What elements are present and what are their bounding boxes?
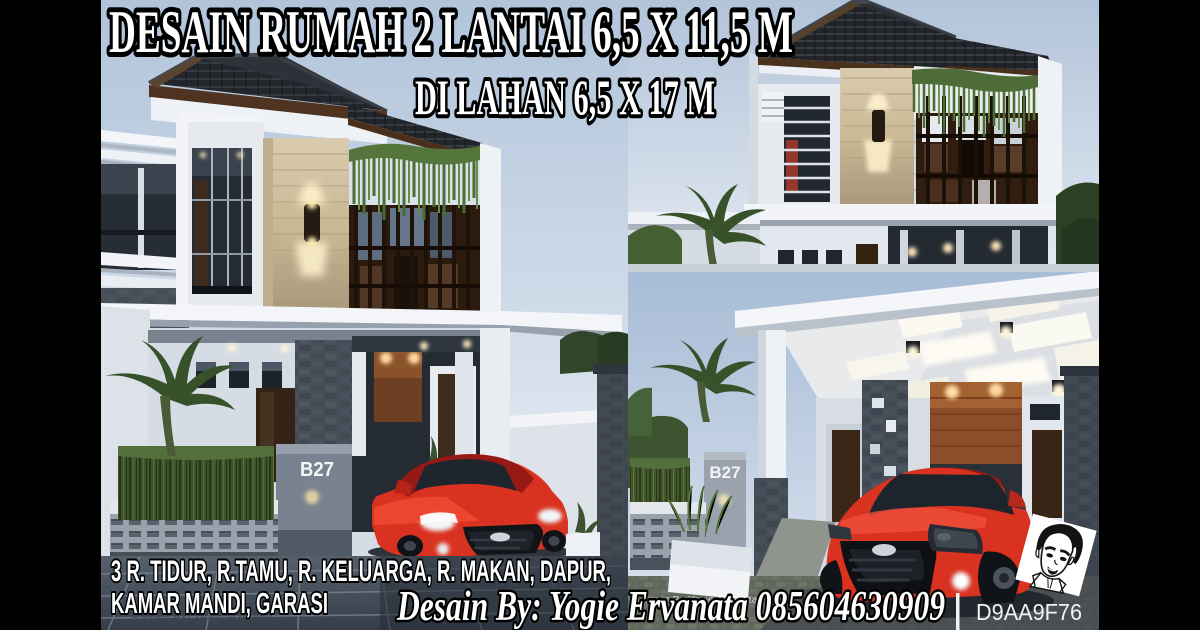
svg-text:DESAIN RUMAH 2 LANTAI 6,5 X 11: DESAIN RUMAH 2 LANTAI 6,5 X 11,5 M: [109, 0, 793, 65]
svg-text:D9AA9F76: D9AA9F76: [976, 599, 1082, 625]
svg-text:KAMAR MANDI, GARASI: KAMAR MANDI, GARASI: [111, 588, 328, 620]
svg-text:B27: B27: [300, 459, 334, 481]
svg-text:Desain By: Yogie Ervanata 085: Desain By: Yogie Ervanata 085604630909: [396, 584, 945, 630]
svg-text:DI LAHAN 6,5 X 17 M: DI LAHAN 6,5 X 17 M: [415, 69, 715, 125]
svg-text:B27: B27: [709, 463, 740, 482]
